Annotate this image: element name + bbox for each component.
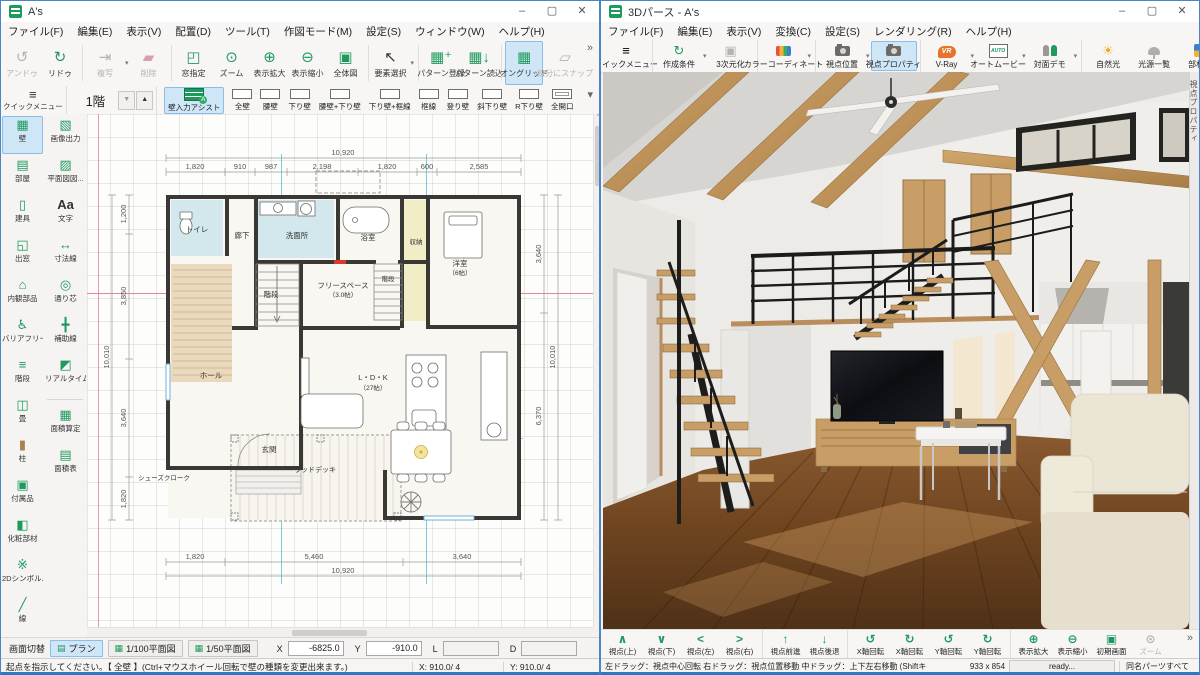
l-label: L xyxy=(433,644,438,654)
minimize-button[interactable]: – xyxy=(1107,1,1137,22)
separator xyxy=(66,86,67,115)
view-forward-button[interactable]: ↑視点前進 xyxy=(766,632,805,657)
svg-text:玄関: 玄関 xyxy=(262,444,277,454)
sidebar-item-room[interactable]: ▤部屋 xyxy=(2,156,43,194)
window-controls: – ▢ ✕ xyxy=(1107,1,1197,22)
facing-demo-button[interactable]: 対面デモ xyxy=(1027,41,1073,71)
tatami-icon: ◫ xyxy=(2,396,43,414)
view-nav-toolbar: ∧視点(上) ∨視点(下) <視点(左) >視点(右) ↑視点前進 ↓視点後退 … xyxy=(601,629,1199,659)
status-y: Y: 910.0/ 4 xyxy=(503,662,594,672)
svg-text:987: 987 xyxy=(265,162,278,171)
sidebar-item-interior-parts[interactable]: ⌂内観部品 xyxy=(2,276,43,314)
window-3d-perspective: 3Dパース - A's – ▢ ✕ ファイル(F) 編集(E) 表示(V) 変換… xyxy=(600,0,1200,675)
sidebar-item-stairs[interactable]: ≡階段 xyxy=(2,356,43,394)
wall-type-opening[interactable]: 全開口 xyxy=(548,88,577,113)
svg-text:階段: 階段 xyxy=(264,289,279,299)
svg-text:10,920: 10,920 xyxy=(332,148,355,157)
rotate-cw-icon: ↻ xyxy=(904,632,914,646)
dropdown-icon[interactable]: ▾ xyxy=(808,52,812,60)
wall-sagari-kamachi-icon xyxy=(380,89,400,99)
bathtub xyxy=(343,207,389,233)
rotate-cw-icon: ↻ xyxy=(982,632,992,646)
create-condition-button[interactable]: ↻作成条件 xyxy=(656,41,702,71)
back-icon: ↓ xyxy=(822,632,828,646)
dropdown-icon[interactable]: ▾ xyxy=(1022,52,1026,60)
pattern-load-button[interactable]: ▦↓パターン読込 xyxy=(460,41,498,85)
titlebar[interactable]: 3Dパース - A's – ▢ ✕ xyxy=(601,1,1199,22)
wall-assist-icon xyxy=(184,88,204,101)
wall-type-r-sagari[interactable]: R下り壁 xyxy=(512,88,546,113)
status-x: X: 910.0/ 4 xyxy=(412,662,503,672)
svg-text:浴室: 浴室 xyxy=(361,232,376,242)
redo-icon: ↻ xyxy=(54,48,67,68)
svg-text:3,640: 3,640 xyxy=(534,245,543,264)
menu-settings[interactable]: 設定(S) xyxy=(818,24,867,39)
zoom-in-button[interactable]: ⊕表示拡大 xyxy=(1014,632,1053,657)
separator xyxy=(847,629,848,659)
sidebar-item-image-output[interactable]: ▧画像出力 xyxy=(45,116,86,154)
view-up-button[interactable]: ∧視点(上) xyxy=(603,632,642,657)
book xyxy=(955,421,977,428)
zoom-out-button[interactable]: ⊖表示縮小 xyxy=(289,41,327,85)
hamburger-icon: ≡ xyxy=(622,43,630,59)
separator xyxy=(368,45,369,81)
view-switch-bar: 画面切替 ▤プラン ▦1/100平面図 ▦1/50平面図 X -6825.0 Y… xyxy=(1,637,599,659)
sidebar-item-baywindow[interactable]: ◱出窓 xyxy=(2,236,43,274)
x-label: X xyxy=(277,644,283,654)
svg-text:6,370: 6,370 xyxy=(534,407,543,426)
pattern-load-icon: ▦↓ xyxy=(468,48,490,68)
zoom-icon: ⊙ xyxy=(225,48,238,68)
titlebar[interactable]: A's – ▢ ✕ xyxy=(1,1,599,22)
snap-icon: ▱ xyxy=(559,48,571,68)
wall-sagari-icon xyxy=(290,89,310,99)
close-button[interactable]: ✕ xyxy=(567,1,597,22)
undo-button[interactable]: ↺アンドゥ xyxy=(3,41,41,85)
menu-tool[interactable]: ツール(T) xyxy=(218,24,277,39)
svg-text:（3.0帖）: （3.0帖） xyxy=(329,290,358,299)
svg-text:ホール: ホール xyxy=(200,371,223,380)
sidebar-item-plan-drawing[interactable]: ▨平面図図... xyxy=(45,156,86,194)
svg-text:2,585: 2,585 xyxy=(470,162,489,171)
sidebar-separator xyxy=(47,399,83,400)
svg-text:1,200: 1,200 xyxy=(119,205,128,224)
y-rotate-cw-button[interactable]: ↻Y軸回転 xyxy=(968,632,1007,657)
x-rotate-ccw-button[interactable]: ↺X軸回転 xyxy=(851,632,890,657)
svg-text:（6帖）: （6帖） xyxy=(448,268,471,277)
sidebar-item-grid-axis[interactable]: ◎通り芯 xyxy=(45,276,86,314)
up-icon: ∧ xyxy=(618,632,628,646)
menu-edit[interactable]: 編集(E) xyxy=(70,24,119,39)
auto-movie-icon: AUTO xyxy=(989,43,1008,59)
separator xyxy=(1081,40,1082,73)
separator xyxy=(815,40,816,73)
quick-menu-button[interactable]: ≡クイックメニュー xyxy=(3,88,63,112)
symbol-icon: ※ xyxy=(2,556,43,574)
zoom-in-icon: ⊕ xyxy=(263,48,276,68)
forward-icon: ↑ xyxy=(783,632,789,646)
y-label: Y xyxy=(355,644,361,654)
wall-koshi-icon xyxy=(260,89,280,99)
snap-line-button[interactable]: ▱線分にスナップ xyxy=(543,41,587,85)
view-1-100-button[interactable]: ▦1/100平面図 xyxy=(108,640,183,657)
wall-kamachi-icon xyxy=(419,89,439,99)
sidebar-item-text[interactable]: Aa文字 xyxy=(45,196,86,234)
separator xyxy=(171,45,172,81)
wall-toolbar-overflow-icon[interactable]: ▾ xyxy=(587,86,597,101)
decor-icon: ◧ xyxy=(2,516,43,534)
sidebar-item-barrier-free[interactable]: ♿バリアフリー xyxy=(2,316,43,354)
zoom-out-icon: ⊖ xyxy=(1067,632,1077,646)
selected-wall-segment xyxy=(334,260,346,264)
tv-board-plan xyxy=(301,358,309,396)
wall-type-shasagari[interactable]: 斜下り壁 xyxy=(474,88,510,113)
zoom-in-button[interactable]: ⊕表示拡大 xyxy=(251,41,289,85)
grid-green-icon: ▦ xyxy=(195,643,204,654)
screen-switch-label: 画面切替 xyxy=(9,642,45,655)
light-list-button[interactable]: 光源一覧 xyxy=(1131,41,1177,71)
main-toolbar: ≡クイックメニュー ↻作成条件 ▾ ▣3次元化 カラーコーディネート ▾ 視点位… xyxy=(601,40,1199,73)
whole-view-button[interactable]: ▣全体図 xyxy=(327,41,365,85)
floor-selector[interactable]: 1階 xyxy=(70,91,117,110)
down-icon: ∨ xyxy=(657,632,667,646)
wall-shasagari-icon xyxy=(482,89,502,99)
plan-drawing-icon: ▨ xyxy=(45,156,86,174)
sidebar-item-helper-line[interactable]: ╋補助線 xyxy=(45,316,86,354)
menu-convert[interactable]: 変換(C) xyxy=(768,24,818,39)
room-shoes-closet xyxy=(171,264,232,382)
sidebar-item-2d-symbol[interactable]: ※2Dシンボル... xyxy=(2,556,43,594)
menu-help[interactable]: ヘルプ(H) xyxy=(492,24,552,39)
3d-viewport[interactable] xyxy=(603,72,1189,629)
svg-text:3,640: 3,640 xyxy=(453,552,472,561)
text-icon: Aa xyxy=(45,196,86,214)
people-icon xyxy=(1043,43,1057,59)
vray-icon: VR xyxy=(938,44,956,60)
wall-opening-icon xyxy=(552,89,572,99)
maximize-button[interactable]: ▢ xyxy=(537,1,567,22)
svg-text:洗面所: 洗面所 xyxy=(286,230,309,240)
initial-view-button[interactable]: ▣初期画面 xyxy=(1092,632,1131,657)
vase xyxy=(833,404,841,419)
zoom-button[interactable]: ⊙ズーム xyxy=(213,41,251,85)
tv xyxy=(831,351,943,421)
wall-koshi-sagari-icon xyxy=(330,89,350,99)
view-down-button[interactable]: ∨視点(下) xyxy=(642,632,681,657)
svg-text:1,820: 1,820 xyxy=(378,162,397,171)
svg-text:L・D・K: L・D・K xyxy=(358,373,388,382)
sidebar-item-tatami[interactable]: ◫畳 xyxy=(2,396,43,434)
auto-movie-button[interactable]: AUTOオートムービー xyxy=(975,41,1021,71)
d-label: D xyxy=(510,644,517,654)
axis-icon: ◎ xyxy=(45,276,86,294)
svg-text:1,820: 1,820 xyxy=(186,162,205,171)
svg-text:600: 600 xyxy=(421,162,434,171)
app-icon xyxy=(9,5,22,18)
viewpoint-property-button[interactable]: 視点プロパティ xyxy=(871,41,917,71)
copy-dropdown[interactable]: ▾ xyxy=(125,59,129,67)
copy-button[interactable]: ⇥複写 xyxy=(86,41,124,85)
eraser-icon: ▰ xyxy=(143,48,155,68)
menu-place[interactable]: 配置(D) xyxy=(168,24,218,39)
sun-icon: ☀ xyxy=(1102,43,1114,59)
separator xyxy=(1010,629,1011,659)
palette-icon xyxy=(776,43,791,59)
svg-text:ウッドデッキ: ウッドデッキ xyxy=(294,465,336,474)
menu-view[interactable]: 表示(V) xyxy=(119,24,168,39)
wall-type-kamachi[interactable]: 框線 xyxy=(416,88,442,113)
zoom-icon: ⊙ xyxy=(1145,632,1155,646)
grid-icon: ▦ xyxy=(517,48,531,68)
image-output-icon: ▧ xyxy=(45,116,86,134)
wall-icon: ▦ xyxy=(2,116,43,134)
pillar-icon: ▮ xyxy=(2,436,43,454)
svg-text:フリースペース: フリースペース xyxy=(317,281,368,290)
wall-type-sagari-kamachi[interactable]: 下り壁+框線 xyxy=(366,88,414,113)
app-icon xyxy=(609,5,622,18)
vray-button[interactable]: VRV-Ray xyxy=(924,41,970,71)
plan-view-button[interactable]: ▤プラン xyxy=(50,640,103,657)
lamp-icon xyxy=(1148,43,1160,59)
menu-edit[interactable]: 編集(E) xyxy=(670,24,719,39)
room-icon: ▤ xyxy=(2,156,43,174)
window-controls: – ▢ ✕ xyxy=(507,1,597,22)
whole-view-icon: ▣ xyxy=(338,48,352,68)
menu-view[interactable]: 表示(V) xyxy=(719,24,768,39)
dropdown-icon[interactable]: ▾ xyxy=(1074,52,1078,60)
quick-menu-button[interactable]: ≡クイックメニュー xyxy=(603,41,649,71)
wall-full-icon xyxy=(232,89,252,99)
separator xyxy=(920,40,921,73)
material-color-icon xyxy=(1194,43,1199,59)
wall-type-full[interactable]: 全壁 xyxy=(229,88,255,113)
same-parts-status: 同名パーツすべて xyxy=(1119,661,1195,672)
copy-icon: ⇥ xyxy=(99,48,112,68)
wall-r-sagari-icon xyxy=(519,89,539,99)
area-calc-icon: ▦ xyxy=(45,406,86,424)
d-input[interactable] xyxy=(521,641,577,656)
sofa-icon: ⌂ xyxy=(2,276,43,294)
area-table-icon: ▤ xyxy=(45,446,86,464)
menu-file[interactable]: ファイル(F) xyxy=(601,24,670,39)
delete-button[interactable]: ▰削除 xyxy=(130,41,168,85)
view-back-button[interactable]: ↓視点後退 xyxy=(805,632,844,657)
floor-up-button[interactable]: ▲ xyxy=(136,91,153,110)
element-select-button[interactable]: ↖要素選択 xyxy=(372,41,410,85)
l-input[interactable] xyxy=(443,641,499,656)
zoom-in-icon: ⊕ xyxy=(1028,632,1038,646)
rotate-ccw-icon: ↺ xyxy=(943,632,953,646)
accessibility-icon: ♿ xyxy=(2,316,43,334)
window-spec-icon: ◰ xyxy=(186,48,200,68)
svg-text:10,010: 10,010 xyxy=(102,346,111,369)
stairs-icon: ≡ xyxy=(2,356,43,374)
sidebar-item-area-table[interactable]: ▤面積表 xyxy=(45,446,86,484)
status-bar: 左ドラッグ：視点中心回転 右ドラッグ：視点位置移動 中ドラッグ：上下左右移動 (… xyxy=(601,658,1199,674)
camera-gear-icon xyxy=(886,43,901,59)
sidebar-item-accessory[interactable]: ▣付属品 xyxy=(2,476,43,514)
zoom-out-button[interactable]: ⊖表示縮小 xyxy=(1053,632,1092,657)
svg-text:廊下: 廊下 xyxy=(235,230,250,240)
wall-type-koshi-sagari[interactable]: 腰壁+下り壁 xyxy=(316,88,364,113)
separator xyxy=(762,629,763,659)
wall-nobori-icon xyxy=(448,89,468,99)
redo-button[interactable]: ↻リドゥ xyxy=(41,41,79,85)
close-button[interactable]: ✕ xyxy=(1167,1,1197,22)
monitor-icon: ▣ xyxy=(724,43,736,59)
toolbar-overflow-icon[interactable]: » xyxy=(1187,630,1197,644)
color-coordinate-button[interactable]: カラーコーディネート xyxy=(761,41,807,71)
sidebar-item-realtime-3d[interactable]: ◩リアルタイム3D... xyxy=(45,356,86,394)
grid-small-icon: ▦ xyxy=(115,643,124,654)
menubar: ファイル(F) 編集(E) 表示(V) 変換(C) 設定(S) レンダリング(R… xyxy=(601,22,1199,41)
plan-view-icon: ▤ xyxy=(57,643,66,654)
separator xyxy=(652,40,653,73)
zoom-button[interactable]: ⊙ズーム xyxy=(1131,632,1170,657)
rotate-ccw-icon: ↺ xyxy=(865,632,875,646)
status-message: 起点を指示してください。【 全壁 】(Ctrl+マウスホイール回転で壁の種類を変… xyxy=(6,661,412,673)
svg-text:3,850: 3,850 xyxy=(119,287,128,306)
y-coordinate-input[interactable]: -910.0 xyxy=(366,641,422,656)
line-icon: ╱ xyxy=(2,596,43,614)
tool-sidebar: ▦壁 ▤部屋 ▯建具 ◱出窓 ⌂内観部品 ♿バリアフリー ≡階段 ◫畳 ▮柱 ▣… xyxy=(1,114,88,637)
view-right-button[interactable]: >視点(右) xyxy=(720,632,759,657)
svg-text:910: 910 xyxy=(234,162,247,171)
natural-light-button[interactable]: ☀自然光 xyxy=(1085,41,1131,71)
floor-plan-drawing[interactable]: 10,920 1,820 910 987 2,198 1,820 600 2,5… xyxy=(87,114,593,627)
sidebar-item-area-calc[interactable]: ▦面積算定 xyxy=(45,406,86,444)
wall-type-nobori[interactable]: 登り壁 xyxy=(444,88,473,113)
window-title: A's xyxy=(28,6,43,18)
minimize-button[interactable]: – xyxy=(507,1,537,22)
main-toolbar: ↺アンドゥ ↻リドゥ ⇥複写 ▾ ▰削除 ◰窓指定 ⊙ズーム ⊕表示拡大 ⊖表示… xyxy=(1,40,599,87)
view-left-button[interactable]: <視点(左) xyxy=(681,632,720,657)
x-rotate-cw-button[interactable]: ↻X軸回転 xyxy=(890,632,929,657)
select-dropdown[interactable]: ▾ xyxy=(411,59,415,67)
left-icon: < xyxy=(697,632,704,646)
svg-text:トイレ: トイレ xyxy=(186,225,209,234)
camera-icon xyxy=(835,43,850,59)
viewport-size: 933 x 854 xyxy=(970,662,1005,671)
recycle-icon: ↻ xyxy=(674,43,685,59)
realtime-3d-icon: ◩ xyxy=(45,356,86,374)
svg-text:収納: 収納 xyxy=(410,237,423,246)
svg-text:10,920: 10,920 xyxy=(332,566,355,575)
viewpoint-position-button[interactable]: 視点位置 xyxy=(819,41,865,71)
window-title: 3Dパース - A's xyxy=(628,4,699,20)
menu-help[interactable]: ヘルプ(H) xyxy=(959,24,1019,39)
wall-type-sagari[interactable]: 下り壁 xyxy=(285,88,314,113)
cup xyxy=(943,421,950,428)
svg-text:（27帖）: （27帖） xyxy=(360,383,387,392)
view-1-50-button[interactable]: ▦1/50平面図 xyxy=(188,640,258,657)
svg-text:シューズクローク: シューズクローク xyxy=(138,473,190,482)
cursor-icon: ↖ xyxy=(384,48,397,68)
svg-text:5,460: 5,460 xyxy=(305,552,324,561)
undo-icon: ↺ xyxy=(16,48,29,68)
window-plan-editor: A's – ▢ ✕ ファイル(F) 編集(E) 表示(V) 配置(D) ツール(… xyxy=(0,0,600,675)
initial-view-icon: ▣ xyxy=(1106,632,1117,646)
menu-drawmode[interactable]: 作図モード(M) xyxy=(277,24,359,39)
hamburger-icon: ≡ xyxy=(29,88,37,101)
bay-window-icon: ◱ xyxy=(2,236,43,254)
plan-canvas[interactable]: 10,920 1,820 910 987 2,198 1,820 600 2,5… xyxy=(87,114,593,627)
y-rotate-ccw-button[interactable]: ↺Y軸回転 xyxy=(929,632,968,657)
accessory-icon: ▣ xyxy=(2,476,43,494)
sidebar-item-pillar[interactable]: ▮柱 xyxy=(2,436,43,474)
drag-help-text: 左ドラッグ：視点中心回転 右ドラッグ：視点位置移動 中ドラッグ：上下左右移動 (… xyxy=(605,661,970,672)
svg-text:3,640: 3,640 xyxy=(119,409,128,428)
vertical-scrollbar[interactable]: ^ xyxy=(593,114,600,627)
sidebar-item-line[interactable]: ╱線 xyxy=(2,596,43,634)
window-spec-button[interactable]: ◰窓指定 xyxy=(175,41,213,85)
helper-line-icon: ╋ xyxy=(45,316,86,334)
sofa-plan xyxy=(301,394,363,428)
wall-type-koshi[interactable]: 腰壁 xyxy=(257,88,283,113)
sidebar-item-dimension[interactable]: ↔寸法線 xyxy=(45,236,86,274)
svg-text:階段: 階段 xyxy=(382,274,396,283)
menubar: ファイル(F) 編集(E) 表示(V) 配置(D) ツール(T) 作図モード(M… xyxy=(1,22,599,41)
wall-input-assist-button[interactable]: 壁入力アシスト xyxy=(164,87,224,114)
floor-down-button[interactable]: ▼ xyxy=(118,91,135,110)
x-coordinate-input[interactable]: -6825.0 xyxy=(288,641,344,656)
svg-text:10,010: 10,010 xyxy=(548,346,557,369)
dimension-icon: ↔ xyxy=(45,236,86,254)
ready-status: ready... xyxy=(1009,660,1115,673)
status-bar: 起点を指示してください。【 全壁 】(Ctrl+マウスホイール回転で壁の種類を変… xyxy=(1,658,599,674)
sidebar-item-wall[interactable]: ▦壁 xyxy=(2,116,43,154)
zoom-out-icon: ⊖ xyxy=(301,48,314,68)
viewpoint-property-tab[interactable]: 視点プロパティ xyxy=(1189,72,1199,629)
menu-rendering[interactable]: レンダリング(R) xyxy=(867,24,959,39)
menu-window[interactable]: ウィンドウ(W) xyxy=(408,24,491,39)
svg-text:洋室: 洋室 xyxy=(453,258,468,268)
dropdown-icon[interactable]: ▾ xyxy=(703,52,707,60)
menu-file[interactable]: ファイル(F) xyxy=(1,24,70,39)
sidebar-item-fitting[interactable]: ▯建具 xyxy=(2,196,43,234)
material-color-button[interactable]: 部材色 xyxy=(1177,41,1199,71)
menu-settings[interactable]: 設定(S) xyxy=(359,24,408,39)
sidebar-item-decor-material[interactable]: ◧化粧部材 xyxy=(2,516,43,554)
pattern-register-icon: ▦⁺ xyxy=(430,48,452,68)
wall-toolbar: ≡クイックメニュー 1階 ▼ ▲ 壁入力アシスト 全壁 腰壁 下り壁 腰壁+下り… xyxy=(1,86,599,115)
svg-text:1,820: 1,820 xyxy=(186,552,205,561)
right-icon: > xyxy=(736,632,743,646)
maximize-button[interactable]: ▢ xyxy=(1137,1,1167,22)
separator xyxy=(156,86,157,115)
plant xyxy=(401,492,421,512)
svg-text:2,198: 2,198 xyxy=(313,162,332,171)
svg-text:1,820: 1,820 xyxy=(119,490,128,509)
separator xyxy=(82,45,83,81)
door-icon: ▯ xyxy=(2,196,43,214)
toolbar-overflow-icon[interactable]: » xyxy=(587,40,597,54)
